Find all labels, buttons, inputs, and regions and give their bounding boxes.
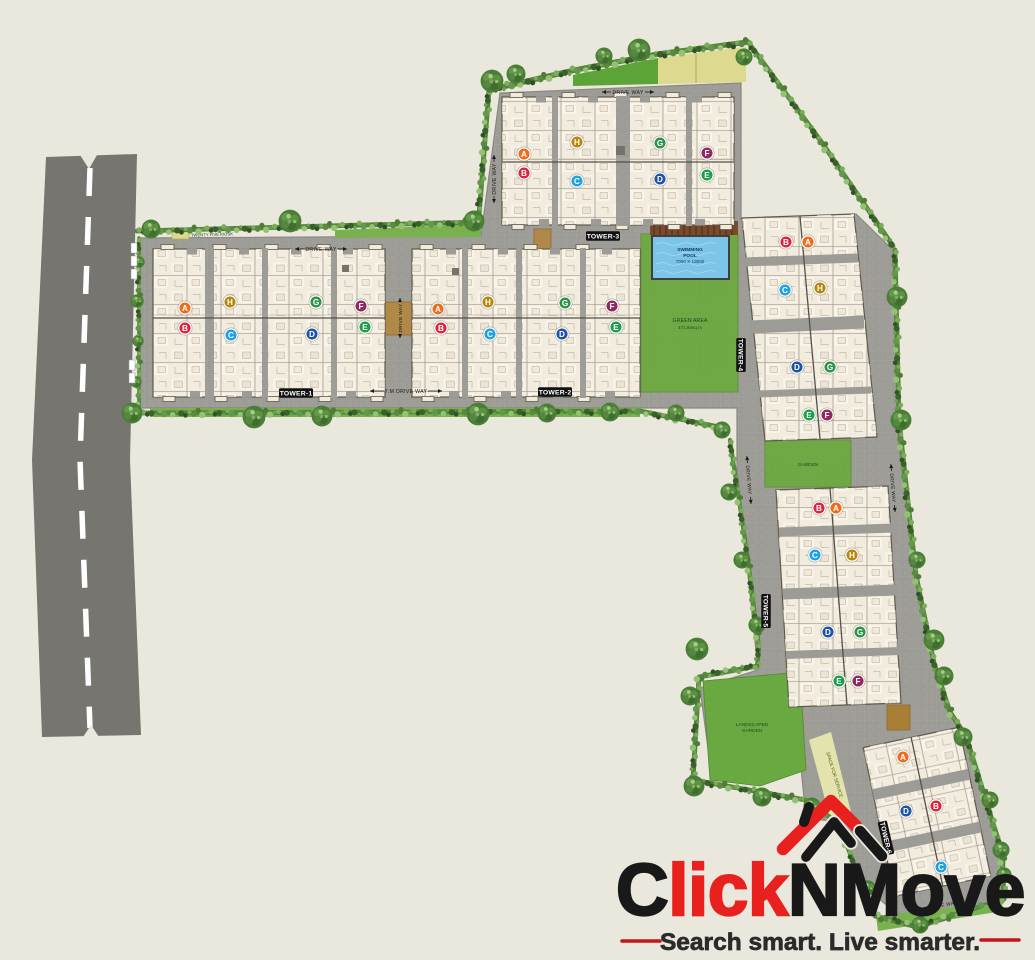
svg-text:G: G [562,299,568,308]
svg-text:E: E [704,171,710,180]
svg-text:TOWER-2: TOWER-2 [539,389,572,396]
svg-text:DRIVE WAY: DRIVE WAY [398,303,404,333]
svg-text:H: H [849,551,855,560]
svg-text:7.M DRIVE WAY: 7.M DRIVE WAY [385,389,428,395]
svg-text:TOWER-3: TOWER-3 [587,233,620,240]
svg-text:TOWER-4: TOWER-4 [737,339,744,372]
svg-text:B: B [182,324,188,333]
svg-text:GARDEN: GARDEN [742,728,763,734]
svg-text:B: B [933,802,939,811]
svg-text:D: D [825,628,831,637]
svg-text:F: F [358,302,363,311]
svg-text:A: A [805,238,811,247]
svg-text:G: G [657,139,663,148]
svg-text:A: A [900,753,906,762]
svg-text:E: E [613,323,619,332]
svg-text:A: A [521,150,527,159]
svg-text:F: F [855,677,860,686]
svg-text:C: C [812,551,818,560]
svg-text:ClickNMove: ClickNMove [616,850,1025,931]
svg-text:H: H [817,284,823,293]
svg-text:TOWER-5: TOWER-5 [762,595,769,628]
svg-text:A: A [435,305,441,314]
svg-text:DRIVE WAY: DRIVE WAY [305,247,336,253]
svg-text:SWIMMING: SWIMMING [677,247,703,253]
svg-text:E: E [806,411,812,420]
svg-text:D: D [794,363,800,372]
svg-text:F: F [824,411,829,420]
svg-text:D: D [559,330,565,339]
svg-text:D: D [903,807,909,816]
svg-text:DRIVE WAY: DRIVE WAY [612,90,643,96]
svg-text:D: D [309,330,315,339]
svg-text:B: B [438,324,444,333]
svg-text:B: B [783,238,789,247]
svg-text:TOWER-1: TOWER-1 [280,390,313,397]
svg-text:C: C [487,330,493,339]
svg-text:C: C [228,331,234,340]
svg-text:DRIVE WAY: DRIVE WAY [492,163,498,194]
svg-text:H: H [574,138,580,147]
svg-text:A: A [833,504,839,513]
svg-text:G: G [857,628,863,637]
svg-text:H: H [227,298,233,307]
svg-text:GARDEN: GARDEN [798,462,819,468]
svg-text:B: B [816,504,822,513]
svg-text:C: C [782,286,788,295]
svg-text:C: C [574,177,580,186]
svg-text:F: F [704,149,709,158]
svg-text:GREEN AREA: GREEN AREA [672,318,707,324]
svg-text:A: A [182,304,188,313]
svg-text:F: F [609,302,614,311]
svg-text:G: G [827,363,833,372]
svg-text:Search smart. Live smarter.: Search smart. Live smarter. [660,929,980,956]
svg-text:G: G [313,298,319,307]
svg-text:471.94sq m: 471.94sq m [678,325,702,330]
svg-text:E: E [836,677,842,686]
svg-text:H: H [485,298,491,307]
svg-text:LANDSCAPED: LANDSCAPED [736,722,769,728]
svg-text:D: D [657,175,663,184]
svg-text:7000 X 13000: 7000 X 13000 [676,259,705,264]
svg-text:B: B [521,169,527,178]
svg-text:E: E [362,323,368,332]
